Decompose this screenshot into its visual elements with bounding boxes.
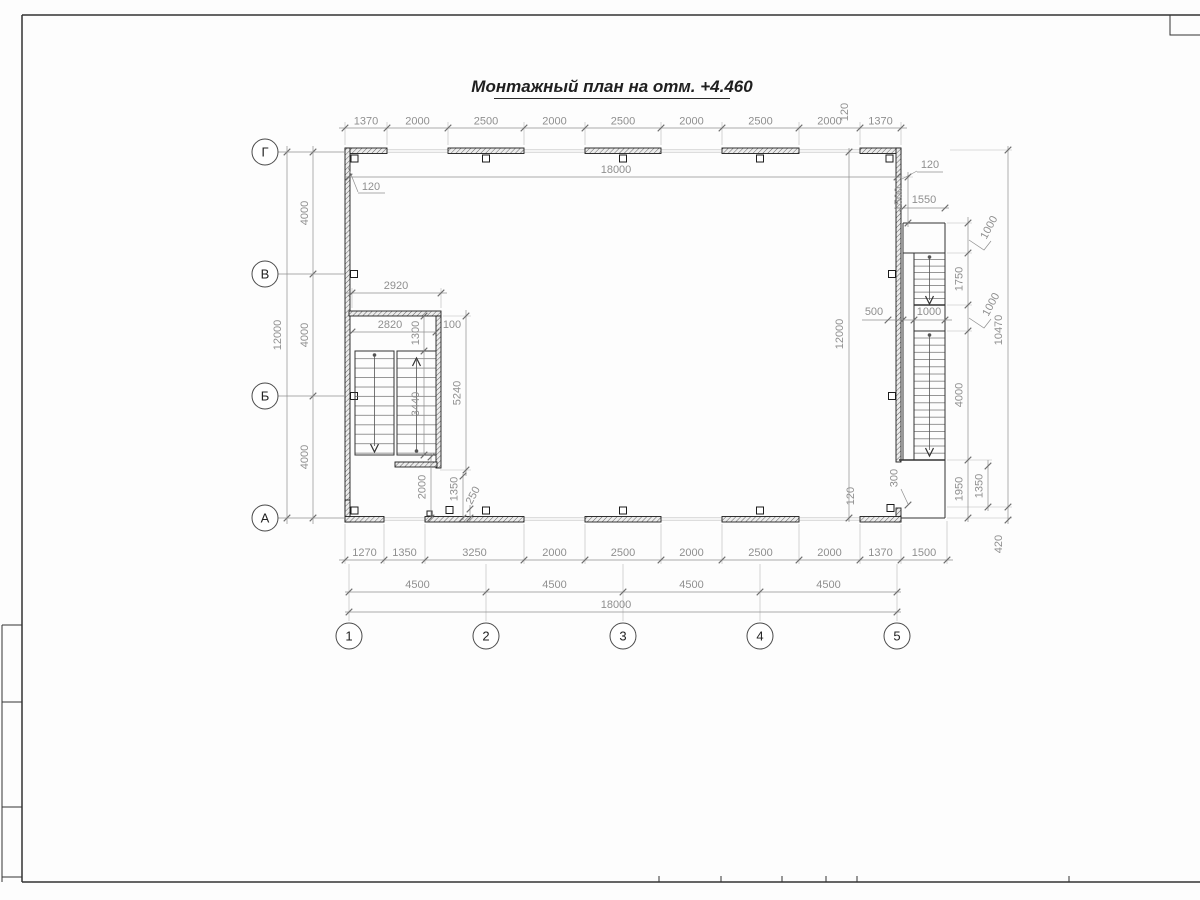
dim-label: 2000 (405, 116, 429, 128)
dim-label: 1750 (954, 267, 966, 291)
dim-label: 5240 (452, 381, 464, 405)
title-block-ticks (659, 876, 1069, 882)
dim-label: 3250 (462, 547, 486, 559)
dim-label: 1500 (893, 187, 905, 211)
dim-label: 4500 (816, 579, 840, 591)
axis-label: Б (261, 389, 270, 404)
dim-label: 1000 (917, 306, 941, 318)
dim-label: 500 (865, 306, 883, 318)
dim-label: 1300 (410, 321, 422, 345)
dim-label: 1270 (352, 547, 376, 559)
dim-label: 120 (839, 103, 851, 121)
plan-drawing: Монтажный план на отм. +4.460 (0, 0, 1200, 900)
dim-label: 2920 (384, 280, 408, 292)
dim-label: 1500 (912, 547, 936, 559)
dim-label: 120 (845, 487, 857, 505)
axis-label: В (261, 267, 270, 282)
dim-label: 2500 (611, 116, 635, 128)
page-title: Монтажный план на отм. +4.460 (471, 77, 753, 96)
dim-label: 1370 (868, 547, 892, 559)
dim-label: 4500 (405, 579, 429, 591)
dim-label: 1350 (449, 477, 461, 501)
dim-label: 300 (889, 469, 901, 487)
dim-label: 2000 (542, 116, 566, 128)
wall-thickness-note: 120 (362, 181, 380, 193)
wall-panels (345, 148, 901, 522)
sheet-frame (2, 15, 1200, 882)
dim-label: 1370 (868, 116, 892, 128)
dim-label: 2500 (748, 116, 772, 128)
dim-label: 10470 (993, 315, 1005, 346)
dim-label: 1950 (954, 477, 966, 501)
dim-label: 4000 (299, 323, 311, 347)
dim-label-total-height: 12000 (272, 320, 284, 351)
axis-label: 2 (482, 629, 489, 644)
stairwell-wall-right (436, 316, 441, 468)
dim-label: 100 (443, 319, 461, 331)
dim-label: 1000 (980, 291, 1002, 318)
dim-label-total-width: 18000 (601, 599, 632, 611)
axis-label: 4 (756, 629, 763, 644)
dim-label: 1370 (354, 116, 378, 128)
axis-label: Г (261, 145, 268, 160)
axis-label: А (261, 511, 270, 526)
dim-label: 2500 (474, 116, 498, 128)
dim-label: 1000 (978, 214, 1000, 241)
axis-label: 1 (345, 629, 352, 644)
dim-label: 2820 (378, 319, 402, 331)
dim-label: 2000 (679, 116, 703, 128)
axis-label: 5 (893, 629, 900, 644)
dim-label: 4000 (299, 201, 311, 225)
walls (345, 148, 901, 522)
dim-label: 4000 (299, 445, 311, 469)
stair-right (899, 223, 945, 518)
wall-thickness-note: 120 (921, 159, 939, 171)
dim-label: 2500 (611, 547, 635, 559)
dim-label: 2000 (417, 475, 429, 499)
dim-label-total-width: 18000 (601, 164, 632, 176)
dim-label-total-height: 12000 (834, 319, 846, 350)
dim-label: 420 (993, 535, 1005, 553)
axis-label: 3 (619, 629, 626, 644)
dim-label: 2000 (817, 547, 841, 559)
dim-label: 2500 (748, 547, 772, 559)
dim-label: 3440 (410, 392, 422, 416)
drawing-page: Монтажный план на отм. +4.460 (0, 0, 1200, 900)
dim-label: 1550 (912, 194, 936, 206)
dim-label: 4500 (679, 579, 703, 591)
dim-label: 1350 (974, 474, 986, 498)
dim-label: 250 (464, 485, 483, 507)
frame-corner-box (1170, 15, 1200, 35)
dim-label: 2000 (542, 547, 566, 559)
dim-label: 1350 (392, 547, 416, 559)
dim-label: 2000 (679, 547, 703, 559)
dim-label: 4000 (954, 383, 966, 407)
drawing-title: Монтажный план на отм. +4.460 (471, 77, 753, 99)
dim-label: 4500 (542, 579, 566, 591)
